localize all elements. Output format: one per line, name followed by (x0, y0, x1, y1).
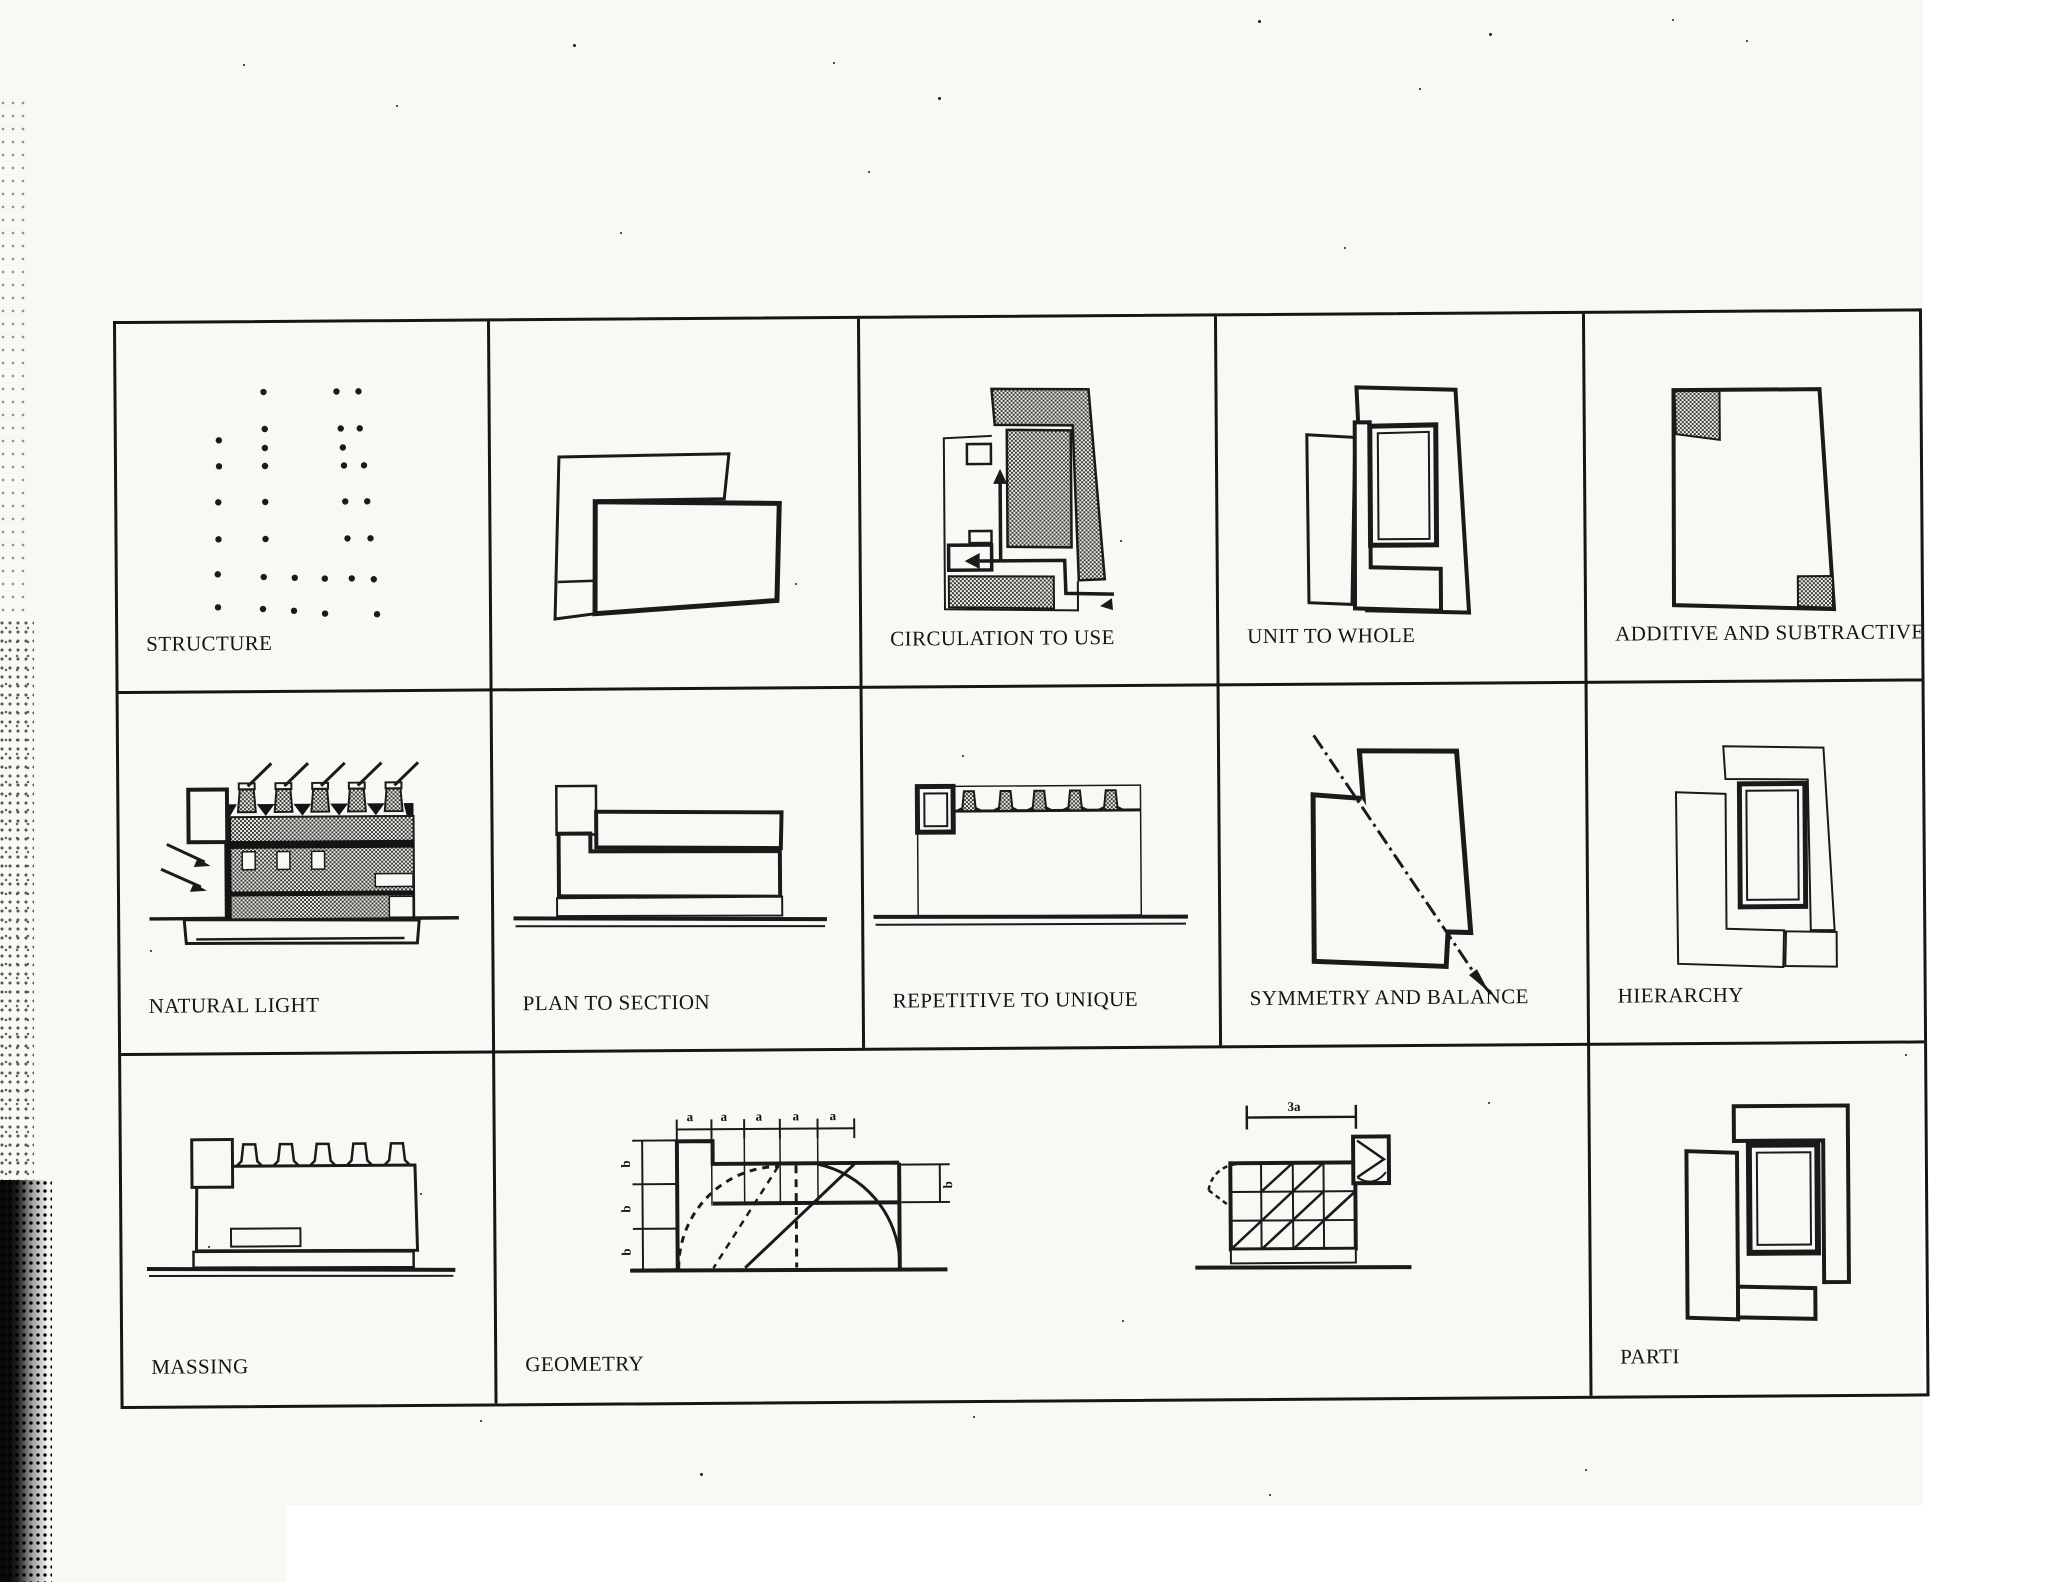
dim-label-3a: 3a (1287, 1100, 1300, 1113)
cell-natural-light: NATURAL LIGHT (119, 691, 492, 1053)
scan-speck (420, 1193, 422, 1195)
dim-label-b: b (619, 1160, 632, 1167)
cell-label-massing: MASSING (151, 1354, 249, 1380)
cell-structure: STRUCTURE (116, 321, 490, 691)
scan-speck (938, 97, 941, 100)
scan-speck (1905, 1054, 1907, 1056)
scan-speck (620, 232, 622, 234)
dim-label-a: a (756, 1110, 763, 1123)
dim-label-b: b (619, 1205, 632, 1212)
scan-speck (795, 583, 797, 585)
scan-speck (1269, 1494, 1271, 1496)
cell-hierarchy: HIERARCHY (1588, 681, 1924, 1042)
scanner-noise-band (0, 1180, 52, 1582)
parti-diagram (1590, 1043, 1926, 1395)
scan-speck (396, 105, 398, 107)
massing-diagram (121, 1053, 494, 1406)
scan-speck (700, 1473, 703, 1476)
scan-edge-white-right (1923, 0, 2048, 1582)
scanned-diagram-page: STRUCTURE (0, 0, 2048, 1582)
geometry-diagram (495, 1046, 1589, 1404)
scan-speck (1746, 40, 1748, 42)
dim-label-b: b (941, 1181, 954, 1188)
cell-label-geometry: GEOMETRY (525, 1351, 644, 1377)
cell-label-circulation: CIRCULATION TO USE (890, 625, 1115, 652)
dim-label-a: a (687, 1110, 694, 1123)
cell-label-hierarchy: HIERARCHY (1618, 983, 1744, 1009)
scan-speck (573, 44, 576, 47)
scanner-noise-band (0, 620, 34, 1180)
scan-speck (208, 1246, 210, 1248)
dim-label-a: a (829, 1109, 836, 1122)
cell-unit-to-whole: UNIT TO WHOLE (1217, 314, 1585, 684)
scan-speck (1344, 247, 1346, 249)
cell-label-repetitive: REPETITIVE TO UNIQUE (893, 987, 1138, 1014)
cell-repetitive-to-unique: REPETITIVE TO UNIQUE (863, 686, 1219, 1047)
cell-parti: PARTI (1590, 1043, 1926, 1395)
cell-geometry: a a a a a b b b b 3a GEOMETRY (495, 1046, 1589, 1404)
scan-speck (1672, 19, 1674, 21)
scan-speck (1489, 33, 1492, 36)
scan-speck (480, 1420, 482, 1422)
scan-speck (962, 755, 964, 757)
cell-symmetry-balance: SYMMETRY AND BALANCE (1220, 684, 1587, 1046)
dim-label-a: a (721, 1110, 728, 1123)
cell-untitled-plan (490, 319, 860, 689)
dim-label-b: b (620, 1248, 633, 1255)
cell-label-natural-light: NATURAL LIGHT (149, 993, 320, 1019)
scan-speck (1585, 1469, 1587, 1471)
scan-speck (1488, 1102, 1490, 1104)
cell-circulation-to-use: CIRCULATION TO USE (860, 316, 1217, 685)
analysis-matrix-table: STRUCTURE (113, 308, 1930, 1409)
dim-label-a: a (792, 1109, 799, 1122)
scanner-noise-band (0, 100, 26, 620)
scan-speck (833, 62, 835, 64)
scan-speck (1122, 1320, 1124, 1322)
scan-speck (1419, 88, 1421, 90)
scan-speck (1120, 540, 1122, 542)
cell-plan-to-section: PLAN TO SECTION (493, 689, 862, 1051)
cell-additive-subtractive: ADDITIVE AND SUBTRACTIVE (1585, 311, 1922, 680)
scan-speck (868, 171, 870, 173)
scan-edge-white-bottom (286, 1505, 2048, 1582)
plan-shapes-diagram (490, 319, 860, 689)
cell-label-unit-to-whole: UNIT TO WHOLE (1247, 623, 1415, 649)
scan-speck (243, 64, 245, 66)
scan-speck (973, 1416, 975, 1418)
cell-label-symmetry: SYMMETRY AND BALANCE (1250, 984, 1529, 1011)
scan-speck (1258, 20, 1261, 23)
cell-label-plan-to-section: PLAN TO SECTION (523, 990, 710, 1016)
cell-massing: MASSING (121, 1053, 494, 1406)
cell-label-parti: PARTI (1620, 1344, 1680, 1369)
cell-label-additive: ADDITIVE AND SUBTRACTIVE (1615, 619, 1925, 646)
scan-speck (150, 950, 152, 952)
cell-label-structure: STRUCTURE (146, 631, 272, 657)
